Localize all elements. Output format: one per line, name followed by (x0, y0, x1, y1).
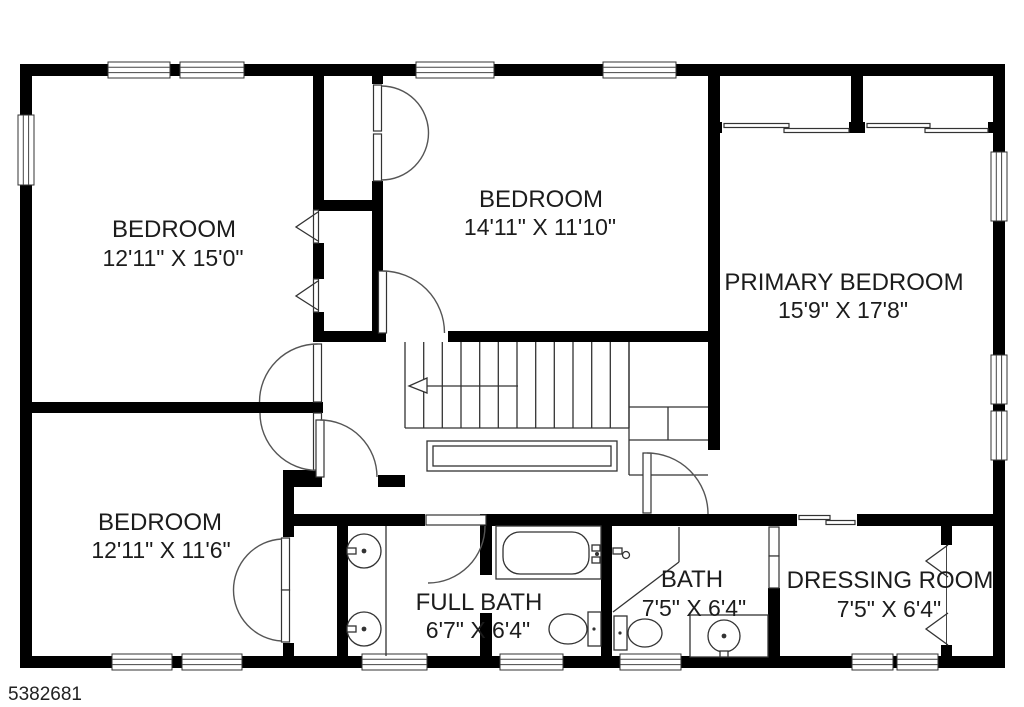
stair-railing (427, 441, 617, 471)
window-icon (18, 115, 34, 185)
stair-treads (405, 342, 629, 428)
toilet (549, 612, 601, 646)
wall-bedroom1-south (20, 402, 323, 413)
window-icon (852, 654, 893, 670)
wall-hall-south (283, 514, 425, 526)
listing-id: 5382681 (8, 684, 82, 705)
bedroom1-door (260, 344, 322, 402)
bedroom2-closet-doors (374, 85, 429, 181)
wall-linen-closet (378, 475, 405, 487)
bedroom3-label: BEDROOM (98, 509, 222, 536)
wall-closet-east (372, 76, 383, 84)
bedroom2-label: BEDROOM (479, 186, 603, 213)
window-icon (416, 62, 494, 78)
window-icon (603, 62, 676, 78)
wall-primary-closet-front (849, 122, 865, 133)
bathtub (496, 526, 601, 579)
stairs-up-arrow-icon (409, 378, 518, 393)
window-icon (182, 654, 242, 670)
wall-bedroom2-south (448, 331, 720, 342)
window-icon (362, 654, 427, 670)
fullbath-dimensions: 6'7" X 6'4" (426, 617, 530, 643)
wall-dressing-closet (941, 526, 952, 545)
wall-dressing-closet (941, 645, 952, 657)
bedroom3-closet-doors (233, 538, 289, 642)
wall-closet-west (313, 243, 324, 279)
dressing-room-sliding-door (799, 516, 855, 525)
dressing-room-label: DRESSING ROOM (787, 567, 994, 594)
bedroom1-label: BEDROOM (112, 216, 236, 243)
bedroom3-dimensions: 12'11" X 11'6" (91, 537, 230, 563)
wall-bedroom2-south (313, 331, 386, 342)
wall-bath-dressing (768, 588, 780, 660)
double-vanity (347, 526, 386, 656)
bath-dressing-pocket-door (769, 527, 779, 588)
window-icon (620, 654, 681, 670)
window-icon (112, 654, 172, 670)
stair-landing (629, 342, 708, 475)
vanity-sink (690, 615, 768, 657)
bedroom1-dimensions: 12'11" X 15'0" (102, 245, 243, 271)
window-icon (991, 355, 1007, 404)
wall-primary-south (857, 514, 1005, 526)
window-icon (897, 654, 938, 670)
wall-bedroom3-closet-east (337, 514, 348, 660)
bedroom2-dimensions: 14'11" X 11'10" (464, 214, 616, 240)
wall-primary-closet-front (708, 122, 722, 133)
floor-plan: BEDROOM 12'11" X 15'0" BEDROOM 14'11" X … (0, 0, 1024, 707)
wall-linen-closet-west (283, 487, 294, 537)
primary-bedroom-label: PRIMARY BEDROOM (724, 269, 963, 296)
primary-bedroom-dimensions: 15'9" X 17'8" (778, 297, 908, 323)
linen-closet-door (316, 420, 377, 477)
window-icon (108, 62, 170, 78)
bath-dimensions: 7'5" X 6'4" (642, 595, 746, 621)
bedroom3-door (260, 413, 322, 471)
window-icon (991, 152, 1007, 221)
wall-closet-west (313, 312, 324, 331)
wall-bedroom3-closet (283, 643, 294, 660)
fullbath-label: FULL BATH (416, 589, 543, 616)
window-icon (991, 411, 1007, 460)
wall-hall-south (487, 514, 797, 526)
primary-bedroom-door (643, 453, 708, 514)
wall-fullbath-bath (601, 514, 612, 660)
window-icon (180, 62, 244, 78)
toilet (614, 616, 662, 650)
fullbath-door (426, 515, 486, 583)
dressing-closet-bifold-doors (926, 545, 948, 645)
dressing-room-dimensions: 7'5" X 6'4" (837, 596, 941, 622)
wall-closet-west (313, 76, 324, 210)
window-icon (500, 654, 563, 670)
bedroom2-door (379, 271, 445, 333)
floor-plan-drawing: BEDROOM 12'11" X 15'0" BEDROOM 14'11" X … (0, 0, 1024, 707)
wall-primary-closet-front (988, 122, 993, 133)
bath-label: BATH (661, 566, 723, 593)
